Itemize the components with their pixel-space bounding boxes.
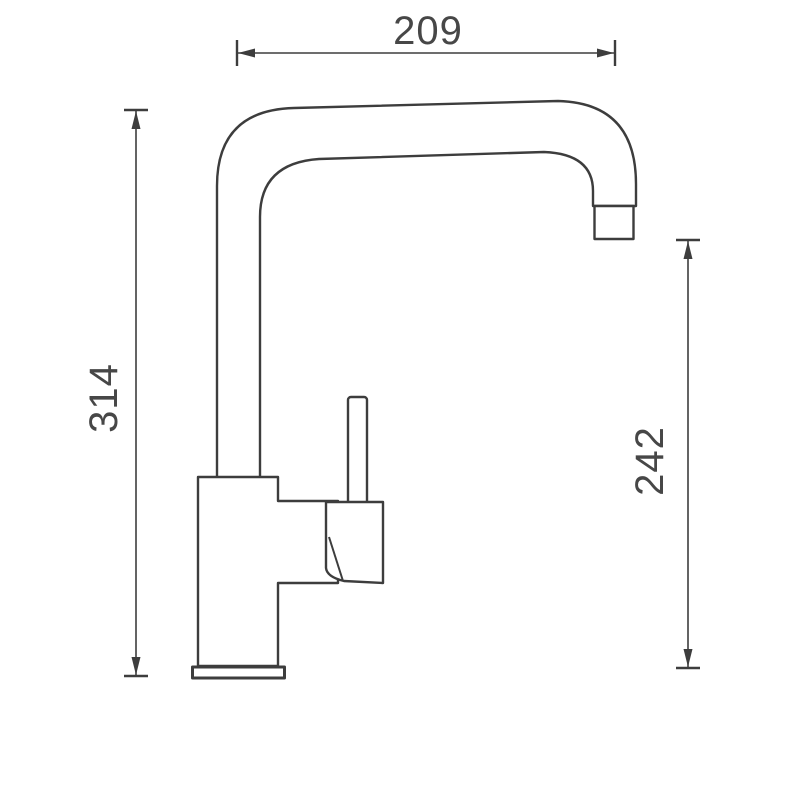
dimension-top-right-arrow [597, 49, 614, 58]
dimension-label-top-width: 209 [393, 11, 463, 51]
dimension-label-left-height: 314 [84, 363, 124, 433]
handle-housing [326, 502, 383, 583]
base-plate [193, 667, 285, 678]
dimension-label-right-height: 242 [630, 426, 670, 496]
aerator-tip [595, 206, 634, 239]
dimension-right-down-arrow [684, 649, 693, 667]
handle-lever [348, 397, 367, 505]
faucet-body [198, 477, 338, 666]
dimension-top-left-arrow [238, 49, 255, 58]
dimension-left [124, 110, 148, 676]
technical-drawing-canvas: 209 314 242 [0, 0, 800, 800]
dimension-left-down-arrow [132, 657, 141, 675]
dimension-right-up-arrow [684, 241, 693, 259]
spout-tube [217, 101, 636, 478]
dimension-left-up-arrow [132, 111, 141, 129]
dimension-right [676, 240, 700, 668]
